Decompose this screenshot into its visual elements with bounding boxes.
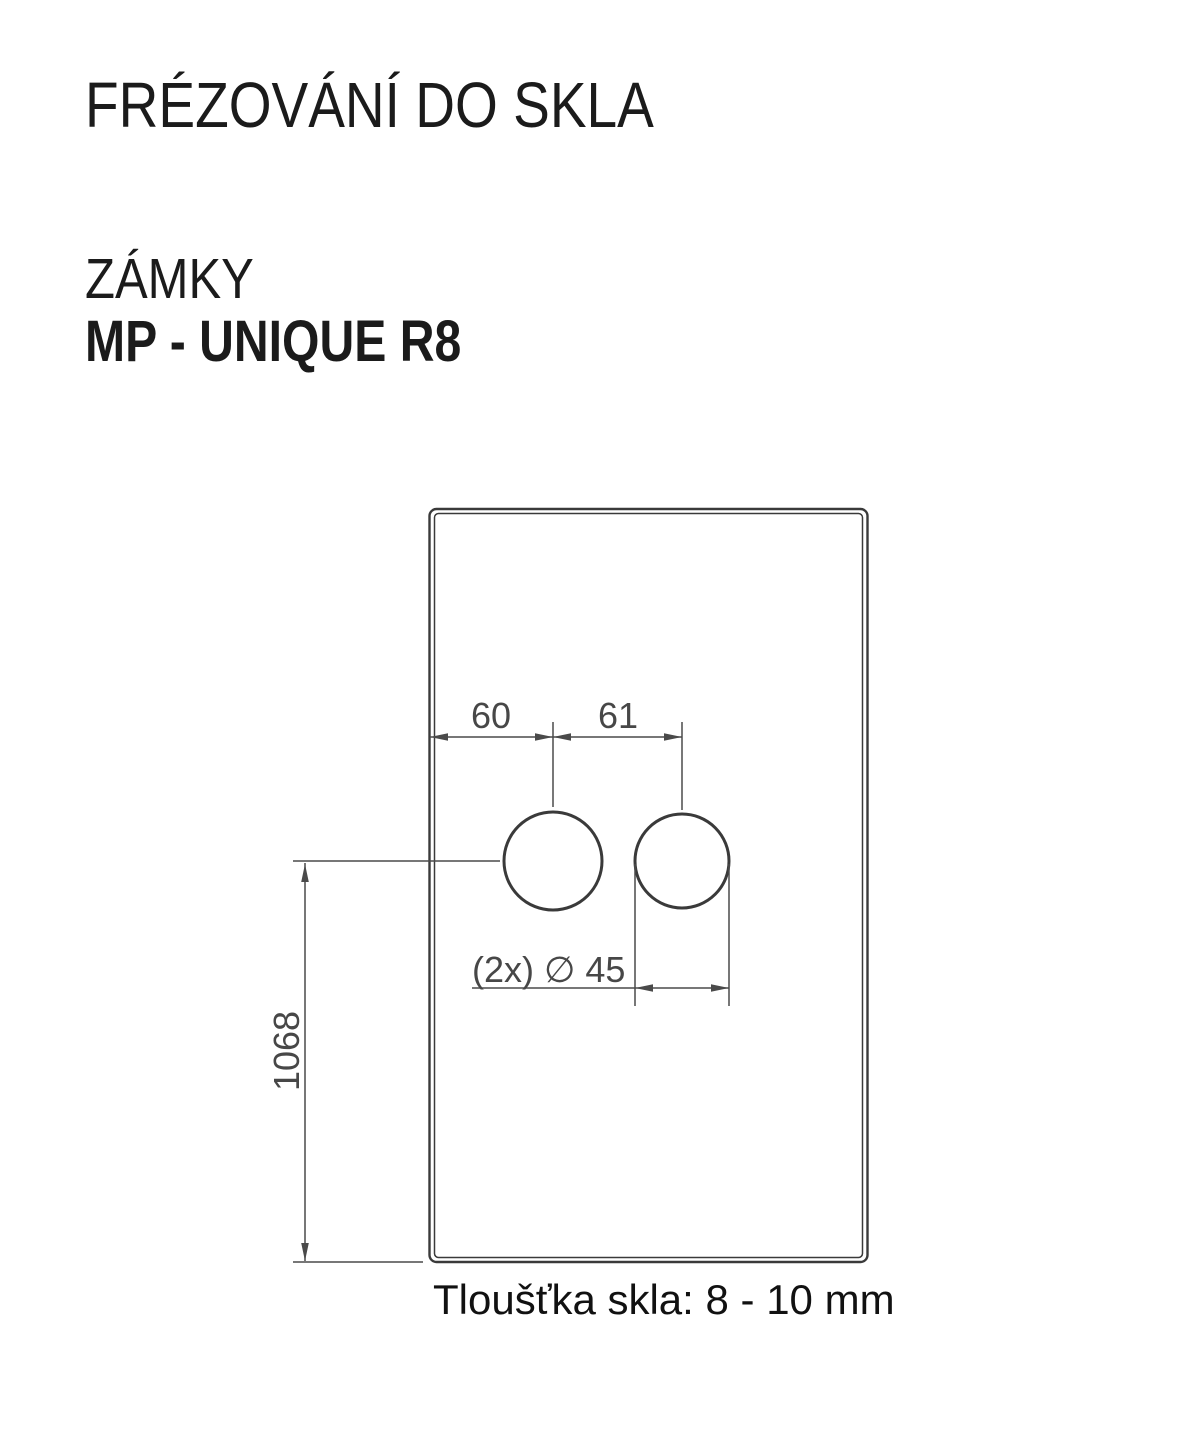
dim-arrow-right-icon <box>711 984 729 992</box>
glass-thickness-caption: Tloušťka skla: 8 - 10 mm <box>433 1278 895 1322</box>
glass-panel-outer-outline <box>430 509 868 1262</box>
dim-arrow-left-icon <box>635 984 653 992</box>
dim-label-hole-diameter: (2x) ∅ 45 <box>472 949 625 990</box>
dim-label-hole-spacing: 61 <box>598 695 638 736</box>
hole-right <box>635 814 729 908</box>
dim-arrow-left-icon <box>553 733 571 741</box>
page: FRÉZOVÁNÍ DO SKLA ZÁMKY MP - UNIQUE R8 <box>0 0 1200 1431</box>
dim-arrow-right-icon <box>535 733 553 741</box>
dim-label-height: 1068 <box>266 1011 307 1091</box>
dim-label-edge-offset: 60 <box>471 695 511 736</box>
technical-drawing: 60 61 (2x) ∅ 45 1068 <box>0 0 1200 1431</box>
hole-left <box>504 812 602 910</box>
glass-panel-inner-outline <box>435 514 863 1258</box>
dim-arrow-left-icon <box>430 733 448 741</box>
dim-arrow-down-icon <box>301 1243 309 1261</box>
dim-arrow-right-icon <box>664 733 682 741</box>
dim-arrow-up-icon <box>301 864 309 882</box>
